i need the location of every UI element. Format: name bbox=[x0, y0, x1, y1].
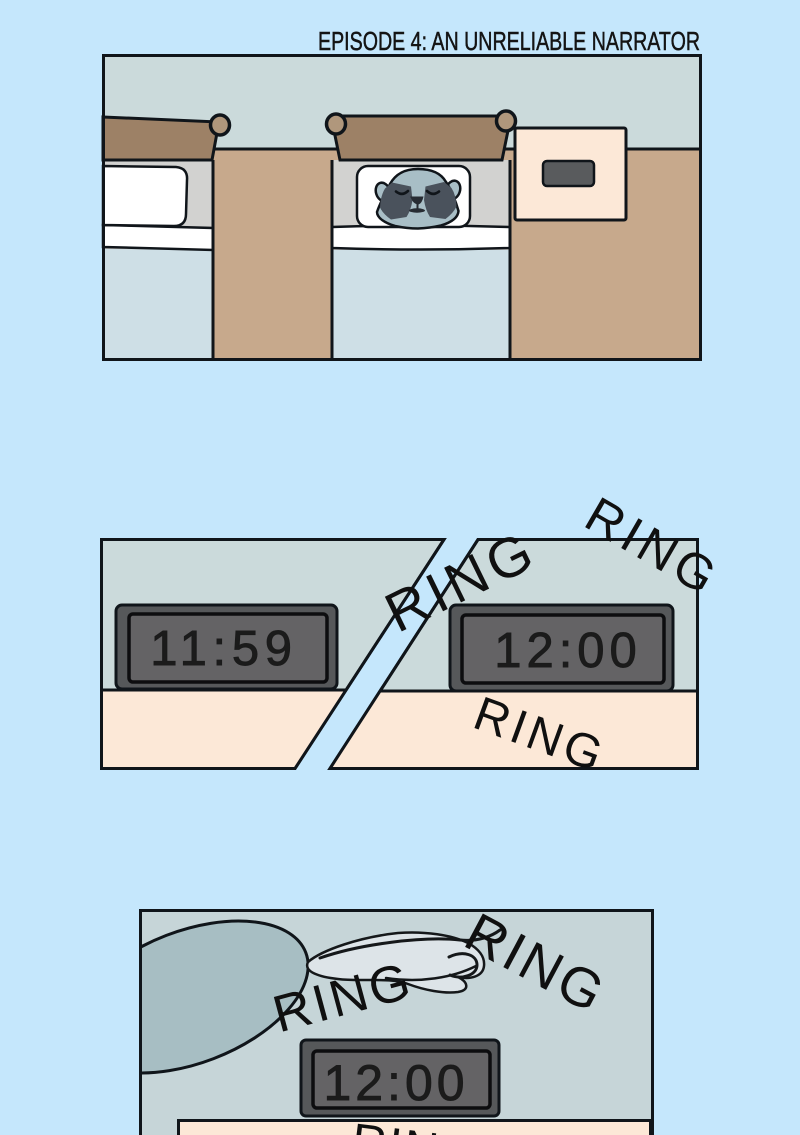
svg-text:EPISODE 4: AN UNRELIABLE NARRA: EPISODE 4: AN UNRELIABLE NARRATOR bbox=[318, 26, 700, 56]
svg-text:12:00: 12:00 bbox=[323, 1055, 468, 1111]
svg-text:11:59: 11:59 bbox=[150, 622, 297, 676]
svg-text:12:00: 12:00 bbox=[494, 624, 642, 678]
